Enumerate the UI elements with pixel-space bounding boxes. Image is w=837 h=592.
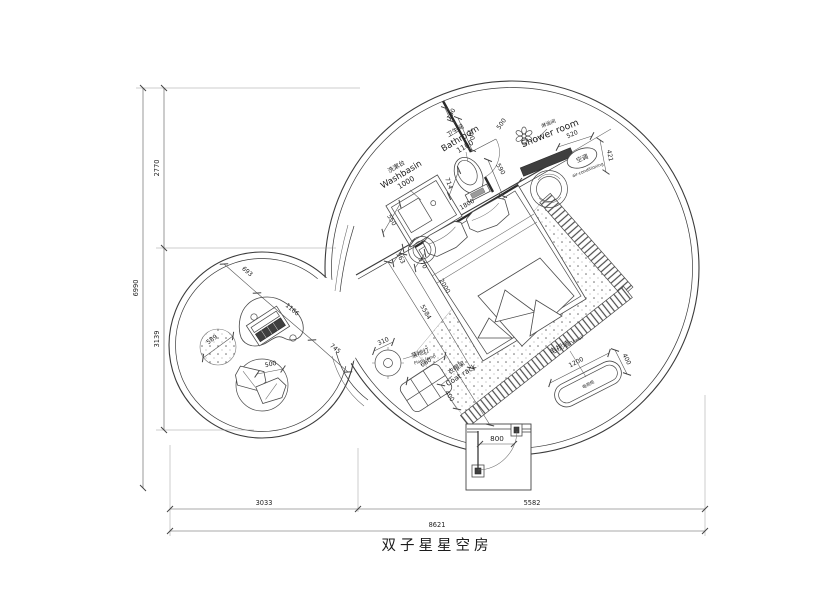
dim-shower-door: 500 (496, 117, 509, 131)
dim-left-top: 2770 (153, 160, 161, 177)
shower-bench (520, 148, 573, 177)
cushion-circle (233, 359, 290, 411)
dimension-lines (136, 88, 705, 536)
dim-lamp: 310 (377, 336, 391, 347)
dim-left-bottom: 3139 (153, 331, 161, 348)
floor-lamp (372, 347, 404, 379)
dim-entry-door: 800 (490, 434, 504, 443)
shower-door-swing (485, 139, 499, 177)
dim-bed-width: 1800 (459, 198, 476, 212)
dim-bottom-left: 3033 (256, 499, 273, 507)
dim-lounge-a: 693 (240, 265, 254, 278)
bean-table (239, 297, 303, 346)
dim-left-total: 6990 (132, 280, 140, 297)
tv-cabinet: 电视柜 (550, 357, 625, 411)
dim-bottom-right: 5582 (524, 499, 541, 507)
bathroom-label: 卫生间 Bathroom 1100 (435, 116, 485, 161)
floor-plan-page: 空调 air-conditioning (0, 0, 837, 592)
neck-wall-top (340, 226, 354, 292)
dim-bath-c: 590 (494, 162, 506, 176)
dim-tv-width: 1200 (568, 356, 585, 369)
dim-bottom-total: 8621 (429, 521, 446, 529)
dim-room-diag: 5584 (418, 304, 432, 321)
dim-cushion: 500 (264, 360, 277, 369)
floor-plan-drawing: 空调 air-conditioning (0, 0, 837, 592)
dim-bath-e: 421 (605, 149, 614, 162)
drawing-title: 双子星星空房 (382, 537, 493, 554)
